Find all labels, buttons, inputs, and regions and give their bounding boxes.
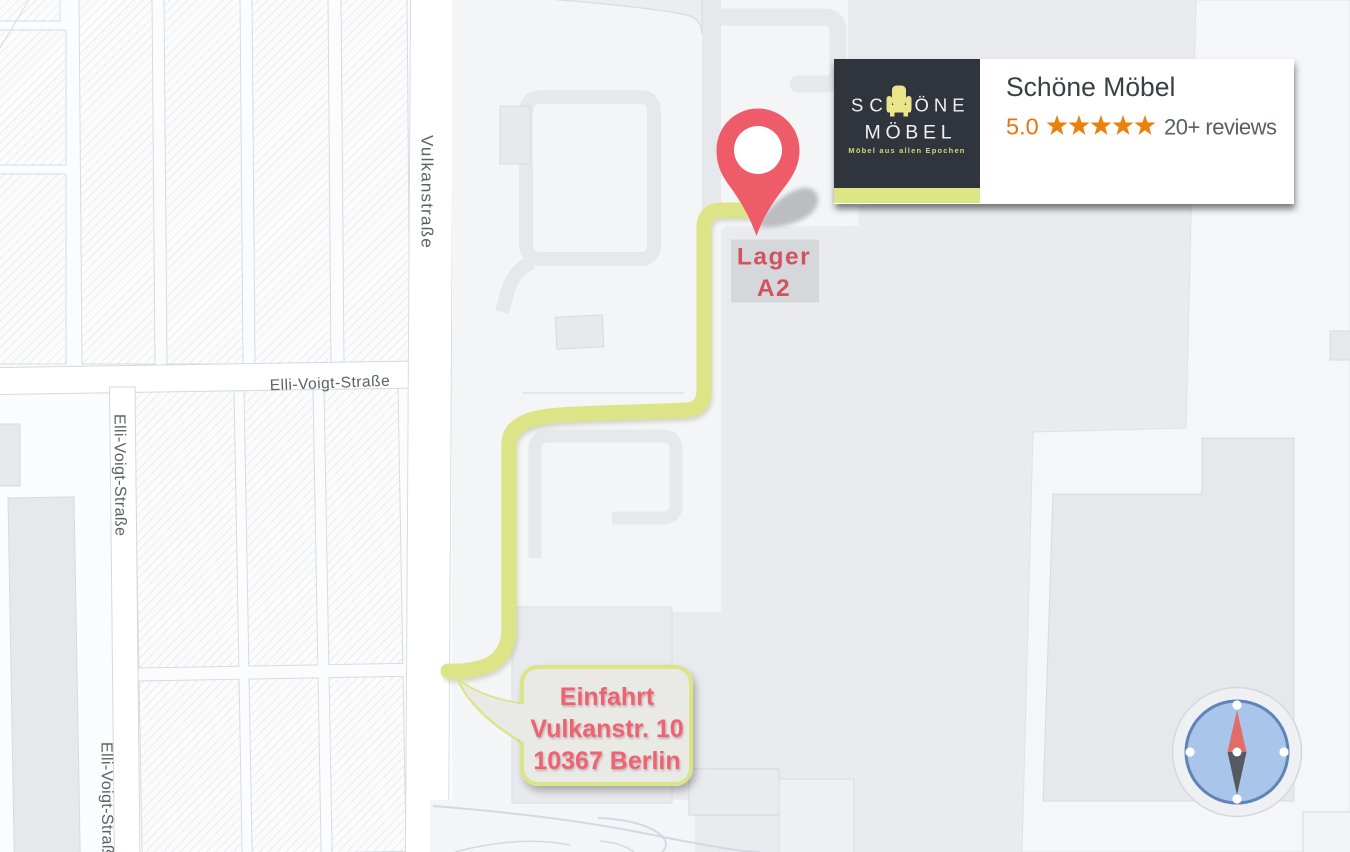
svg-text:20+ reviews: 20+ reviews (1164, 115, 1277, 140)
svg-text:Vulkanstr. 10: Vulkanstr. 10 (530, 715, 683, 743)
svg-text:A2: A2 (757, 275, 791, 302)
svg-text:Möbel aus allen Epochen: Möbel aus allen Epochen (848, 146, 965, 155)
svg-text:Einfahrt: Einfahrt (560, 683, 655, 711)
svg-text:10367 Berlin: 10367 Berlin (533, 747, 680, 775)
svg-text:5.0: 5.0 (1006, 114, 1039, 140)
svg-text:Elli-Voigt-Straße: Elli-Voigt-Straße (98, 742, 116, 852)
svg-text:Lager: Lager (737, 244, 811, 271)
svg-text:ÖNE: ÖNE (915, 95, 970, 116)
svg-text:Vulkanstraße: Vulkanstraße (418, 135, 437, 249)
svg-text:Elli-Voigt-Straße: Elli-Voigt-Straße (111, 414, 129, 537)
svg-text:Schöne Möbel: Schöne Möbel (1006, 72, 1175, 102)
svg-text:SC: SC (851, 95, 889, 116)
svg-text:MÖBEL: MÖBEL (865, 122, 957, 144)
